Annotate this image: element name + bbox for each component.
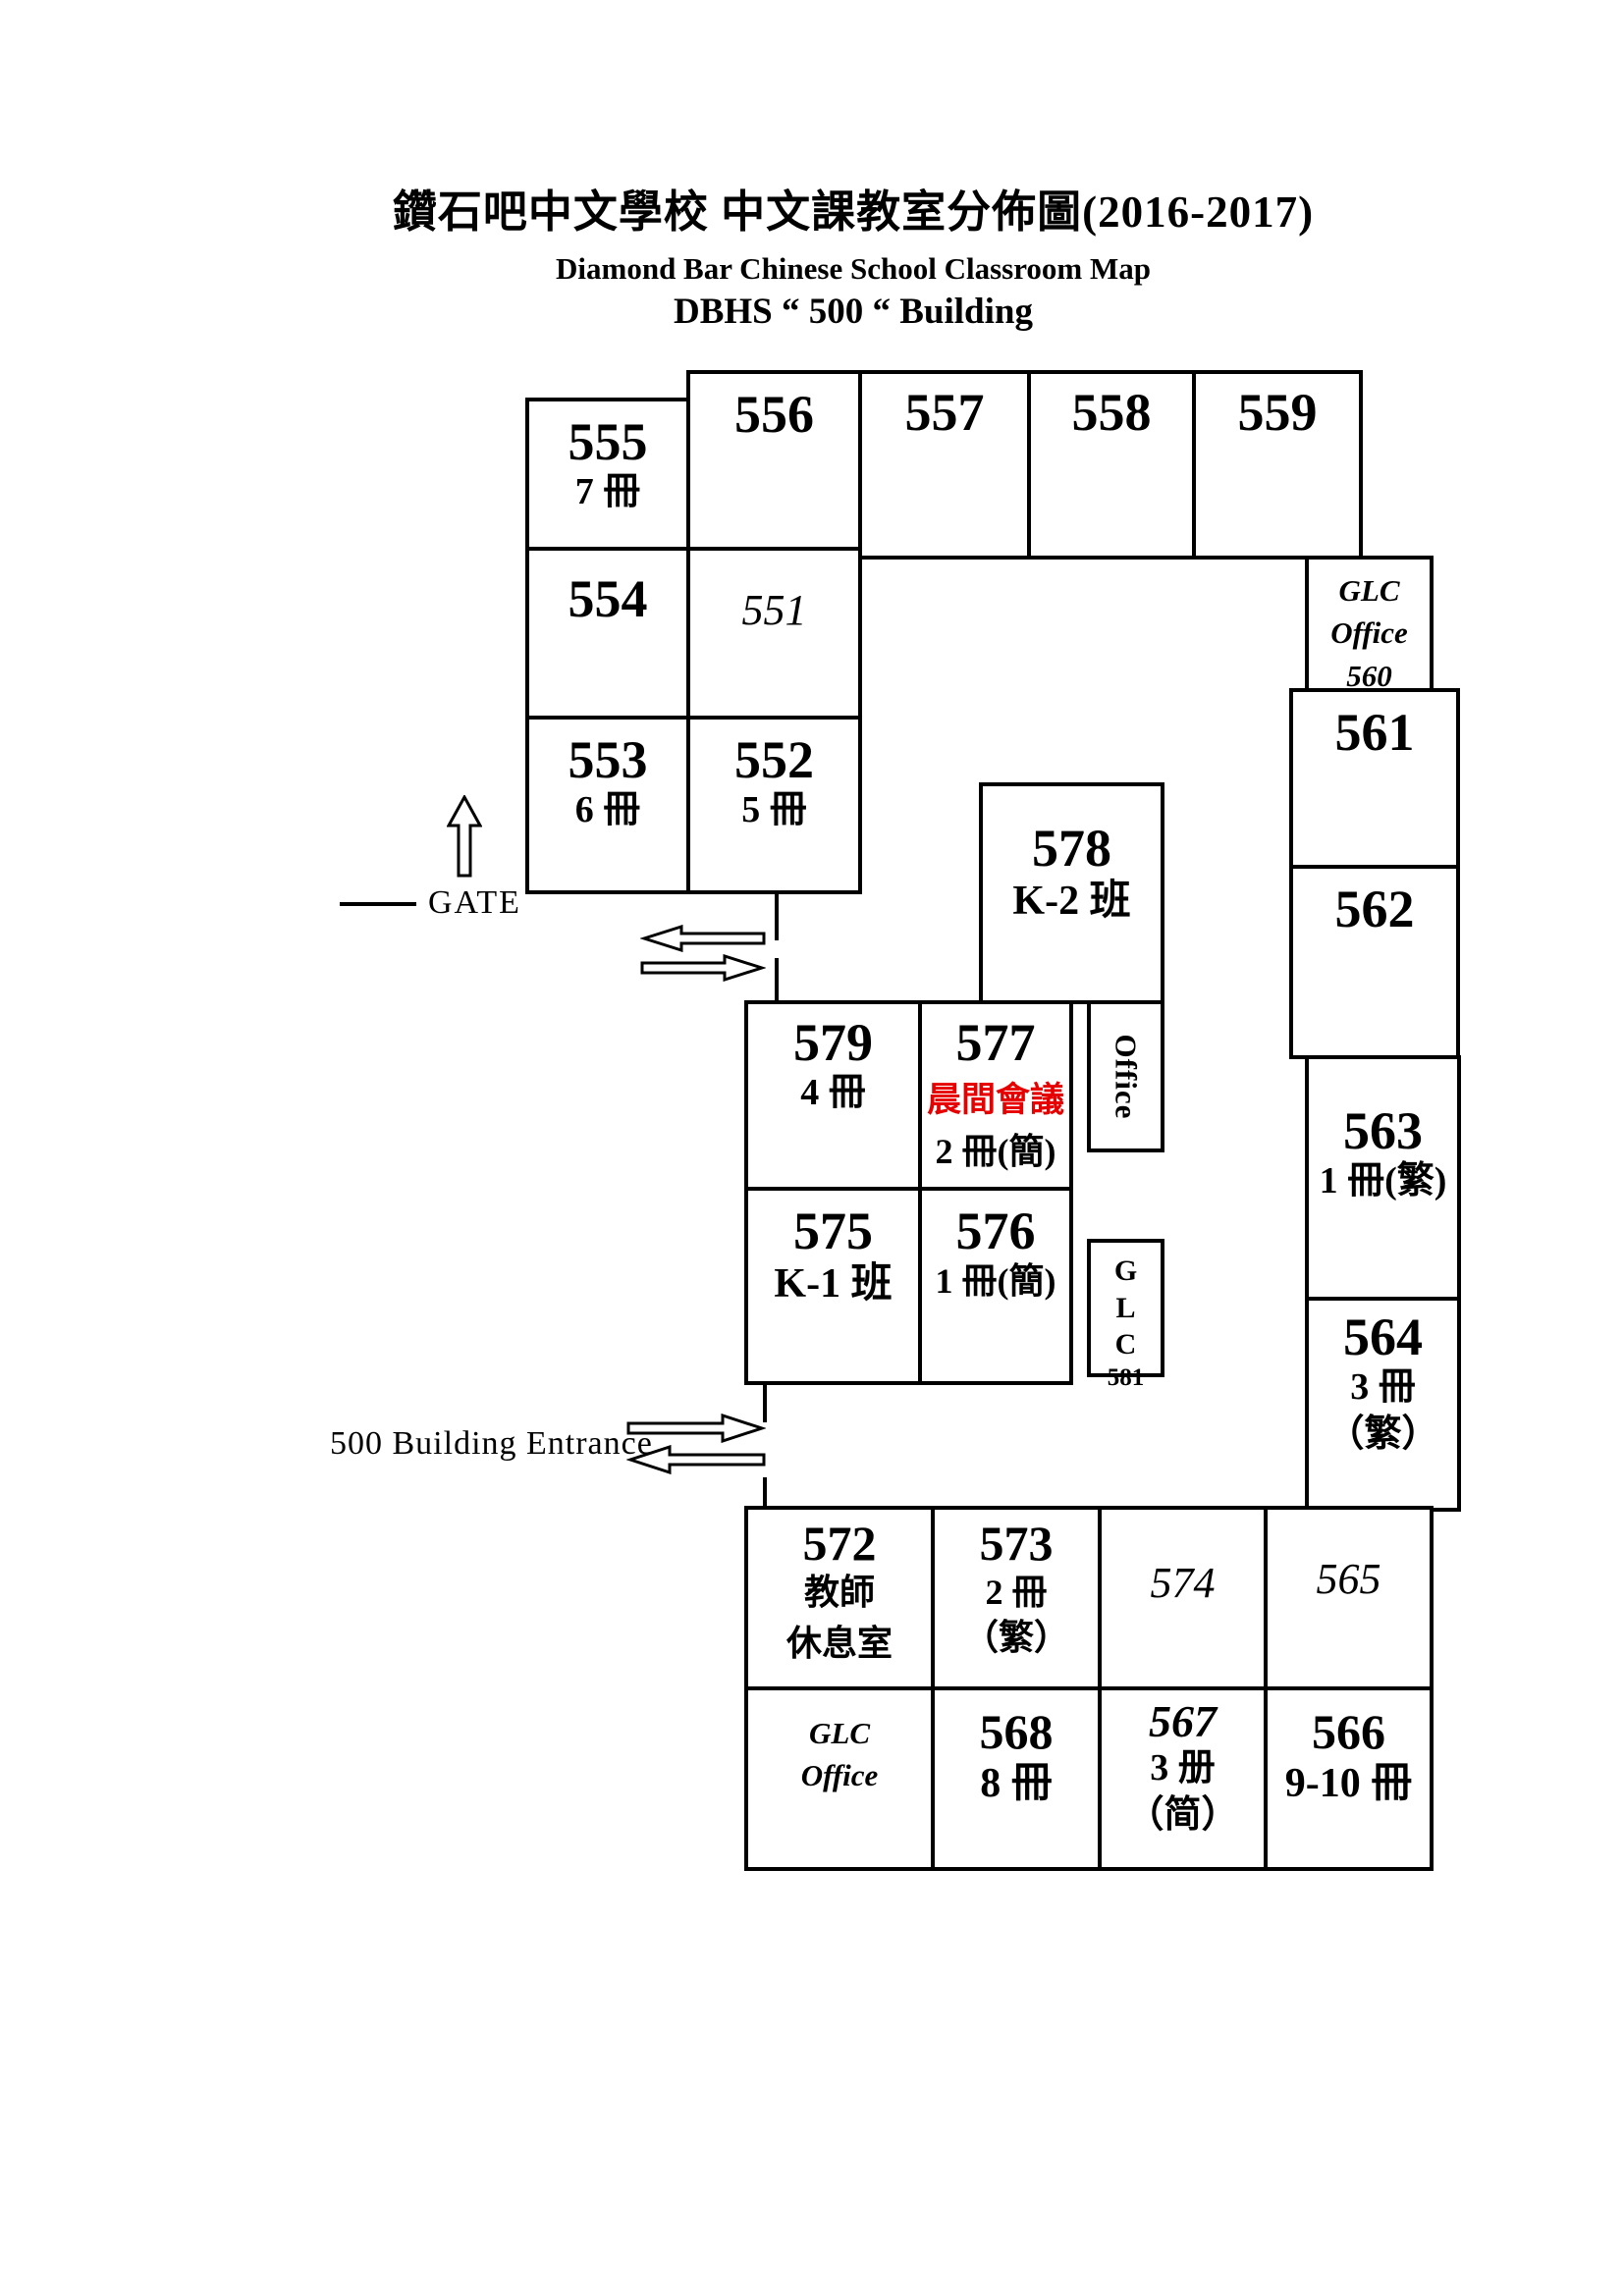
office-label: Office <box>1330 612 1408 654</box>
page-subtitle: Diamond Bar Chinese School Classroom Map <box>82 251 1624 287</box>
room-number: 561 <box>1335 706 1415 760</box>
room-class-label: 1 冊(繁) <box>1320 1158 1447 1205</box>
office-label: L <box>1115 1290 1135 1327</box>
room-574: 574 <box>1098 1506 1268 1690</box>
room-class-label: 3 册 <box>1150 1745 1216 1792</box>
room-number: 575 <box>793 1204 873 1258</box>
morning-meeting-label: 晨間會議 <box>927 1080 1064 1121</box>
room-class-label: （繁） <box>1326 1412 1438 1459</box>
gate-right-arrow-icon <box>640 954 766 982</box>
room-557: 557 <box>858 370 1031 560</box>
office-label: Office <box>801 1754 879 1796</box>
office-label: G <box>1114 1253 1137 1290</box>
room-class-label: 教師 <box>804 1570 875 1616</box>
room-565: 565 <box>1264 1506 1434 1690</box>
room-glc-office-sw: GLC Office <box>744 1686 935 1871</box>
office-label: GLC <box>1339 569 1400 612</box>
building-title: DBHS “ 500 “ Building <box>82 291 1624 333</box>
room-class-label: 8 冊 <box>980 1758 1053 1810</box>
room-number: 572 <box>803 1518 877 1570</box>
gate-up-arrow-icon <box>447 795 482 878</box>
room-number: 555 <box>568 415 648 469</box>
room-number: 566 <box>1312 1706 1385 1758</box>
room-number: 558 <box>1072 386 1152 440</box>
room-number: 556 <box>734 388 814 442</box>
room-552: 552 5 冊 <box>686 716 862 894</box>
room-class-label: K-2 班 <box>1012 876 1130 928</box>
entrance-label: 500 Building Entrance <box>330 1425 653 1463</box>
office-label: Office <box>1109 1034 1144 1119</box>
room-number: 559 <box>1238 386 1318 440</box>
entrance-left-arrow-icon <box>626 1445 766 1474</box>
room-572: 572 教師 休息室 <box>744 1506 935 1690</box>
room-number: 573 <box>980 1518 1054 1570</box>
room-class-label: 3 冊 <box>1350 1364 1416 1412</box>
room-554: 554 <box>525 547 690 720</box>
classroom-map-page: 鑽石吧中文學校 中文課教室分佈圖(2016-2017) Diamond Bar … <box>0 0 1624 2296</box>
room-class-label: 4 冊 <box>800 1070 866 1117</box>
room-class-label: 2 冊(簡) <box>936 1129 1056 1175</box>
room-class-label: 6 冊 <box>575 787 641 834</box>
room-562: 562 <box>1289 865 1460 1059</box>
room-number: 551 <box>742 588 807 633</box>
room-class-label: （简） <box>1126 1792 1238 1840</box>
room-office: Office <box>1087 1000 1164 1152</box>
gate-left-arrow-icon <box>640 925 766 952</box>
wall-segment <box>775 894 779 940</box>
room-number: 553 <box>568 733 648 787</box>
room-564: 564 3 冊 （繁） <box>1305 1297 1461 1512</box>
room-number: 581 <box>1108 1363 1145 1393</box>
page-title: 鑽石吧中文學校 中文課教室分佈圖(2016-2017) <box>82 188 1624 238</box>
room-glc-office-560: GLC Office 560 <box>1305 556 1434 692</box>
room-575: 575 K-1 班 <box>744 1187 922 1385</box>
room-class-label: 7 冊 <box>575 469 641 516</box>
office-label: C <box>1115 1326 1137 1363</box>
room-number: 565 <box>1317 1557 1381 1602</box>
room-number: 567 <box>1149 1698 1217 1745</box>
room-556: 556 <box>686 370 862 551</box>
room-number: 562 <box>1335 882 1415 936</box>
room-number: 563 <box>1343 1104 1423 1158</box>
room-number: 568 <box>980 1706 1054 1758</box>
room-577: 577 晨間會議 2 冊(簡) <box>918 1000 1073 1191</box>
room-576: 576 1 冊(簡) <box>918 1187 1073 1385</box>
room-551: 551 <box>686 547 862 720</box>
room-number: 576 <box>956 1204 1036 1258</box>
room-number: 564 <box>1343 1310 1423 1364</box>
gate-label: GATE <box>428 884 521 922</box>
room-553: 553 6 冊 <box>525 716 690 894</box>
room-number: 554 <box>568 572 648 626</box>
office-label: GLC <box>809 1712 870 1754</box>
room-558: 558 <box>1027 370 1196 560</box>
room-class-label: 9-10 冊 <box>1285 1758 1413 1810</box>
room-class-label: 1 冊(簡) <box>936 1258 1056 1305</box>
room-glc-581: G L C 581 <box>1087 1239 1164 1377</box>
room-573: 573 2 冊 （繁） <box>931 1506 1102 1690</box>
room-561: 561 <box>1289 688 1460 869</box>
room-class-label: 2 冊 <box>985 1570 1047 1616</box>
wall-segment <box>775 958 779 1002</box>
gate-tick-line <box>340 902 416 906</box>
room-number: 577 <box>956 1016 1036 1070</box>
room-number: 574 <box>1151 1561 1216 1606</box>
room-563: 563 1 冊(繁) <box>1305 1055 1461 1301</box>
room-568: 568 8 冊 <box>931 1686 1102 1871</box>
entrance-right-arrow-icon <box>626 1414 766 1443</box>
room-555: 555 7 冊 <box>525 398 690 551</box>
room-class-label: 休息室 <box>786 1621 893 1667</box>
room-567: 567 3 册 （简） <box>1098 1686 1268 1871</box>
room-number: 557 <box>905 386 985 440</box>
room-number: 552 <box>734 733 814 787</box>
room-566: 566 9-10 冊 <box>1264 1686 1434 1871</box>
room-class-label: K-1 班 <box>774 1258 892 1310</box>
room-579: 579 4 冊 <box>744 1000 922 1191</box>
room-number: 578 <box>1032 822 1111 876</box>
room-559: 559 <box>1192 370 1363 560</box>
room-class-label: （繁） <box>963 1615 1069 1661</box>
room-number: 579 <box>793 1016 873 1070</box>
room-578: 578 K-2 班 <box>979 782 1164 1004</box>
wall-segment <box>763 1477 767 1508</box>
page-header: 鑽石吧中文學校 中文課教室分佈圖(2016-2017) Diamond Bar … <box>0 188 1624 333</box>
room-class-label: 5 冊 <box>741 787 807 834</box>
